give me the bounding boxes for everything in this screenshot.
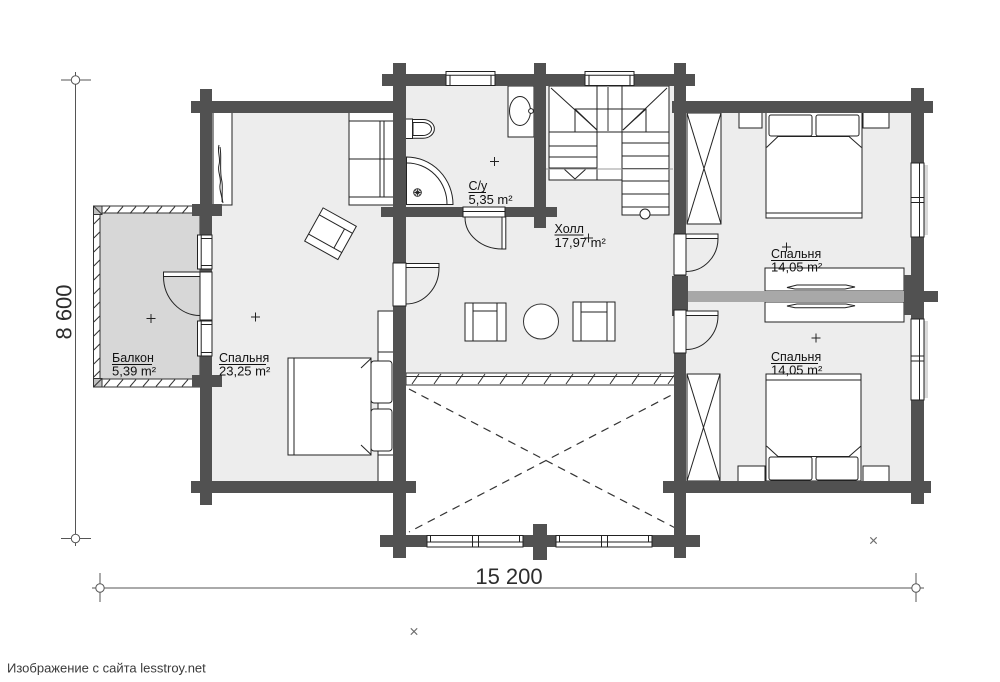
svg-text:8 600: 8 600: [52, 284, 77, 339]
svg-text:17,97 m²: 17,97 m²: [555, 235, 607, 250]
svg-text:23,25 m²: 23,25 m²: [219, 364, 271, 379]
svg-text:Холл: Холл: [555, 222, 584, 236]
svg-text:5,39 m²: 5,39 m²: [112, 364, 157, 379]
svg-text:14,05 m²: 14,05 m²: [771, 260, 823, 275]
svg-text:15 200: 15 200: [475, 564, 542, 589]
svg-text:5,35 m²: 5,35 m²: [469, 192, 514, 207]
svg-text:14,05 m²: 14,05 m²: [771, 363, 823, 378]
svg-text:Изображение с сайта lesstroy.n: Изображение с сайта lesstroy.net: [7, 661, 206, 676]
svg-text:С/у: С/у: [469, 179, 489, 193]
